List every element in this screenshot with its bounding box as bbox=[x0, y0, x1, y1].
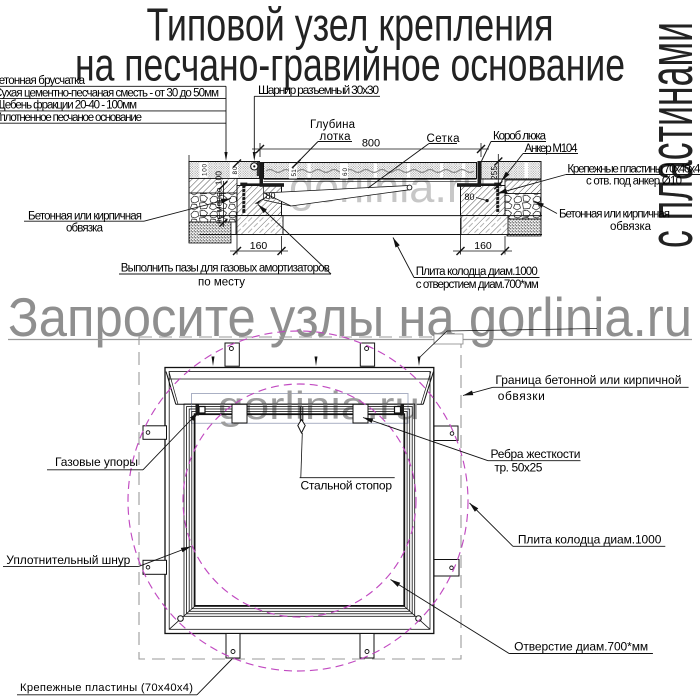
svg-text:Запросите узлы на gorlinia.ru: Запросите узлы на gorlinia.ru bbox=[8, 286, 692, 348]
svg-text:Отверстие диам.700*мм: Отверстие диам.700*мм bbox=[514, 640, 648, 654]
svg-text:Бетонная или кирпичная: Бетонная или кирпичная bbox=[28, 211, 142, 223]
svg-text:160: 160 bbox=[250, 240, 268, 252]
svg-text:Шарнир разъемный 30х30: Шарнир разъемный 30х30 bbox=[258, 83, 379, 97]
svg-text:80: 80 bbox=[266, 191, 276, 202]
svg-text:Короб люка: Короб люка bbox=[493, 131, 547, 143]
svg-text:Плита колодца диам.1000: Плита колодца диам.1000 bbox=[416, 266, 538, 278]
svg-text:Крепежные пластины 70х40х4: Крепежные пластины 70х40х4 bbox=[567, 164, 700, 176]
svg-text:Глубина: Глубина bbox=[310, 119, 356, 131]
svg-text:Бетонная брусчатка: Бетонная брусчатка bbox=[0, 75, 86, 87]
svg-text:800: 800 bbox=[362, 138, 380, 150]
svg-text:по месту: по месту bbox=[198, 277, 245, 289]
svg-text:80: 80 bbox=[465, 192, 475, 203]
svg-text:Выполнить пазы для газовых амо: Выполнить пазы для газовых амортизаторов bbox=[121, 263, 330, 275]
svg-text:Граница бетонной или кирпичной: Граница бетонной или кирпичной bbox=[495, 373, 681, 387]
svg-text:обвязка: обвязка bbox=[610, 221, 652, 233]
svg-text:обвязки: обвязки bbox=[498, 389, 545, 403]
svg-text:Ребра жесткости: Ребра жесткости bbox=[491, 447, 581, 461]
svg-text:с отверстием диам.700*мм: с отверстием диам.700*мм bbox=[416, 279, 539, 291]
svg-text:Сухая цементно-песчаная сместь: Сухая цементно-песчаная сместь - от 30 д… bbox=[0, 87, 219, 99]
svg-text:51*: 51* bbox=[291, 166, 298, 177]
svg-text:Плита колодца диам.1000: Плита колодца диам.1000 bbox=[518, 533, 662, 547]
svg-text:60: 60 bbox=[342, 168, 349, 176]
svg-text:Щебень фракции 20-40 - 100мм: Щебень фракции 20-40 - 100мм bbox=[0, 100, 137, 112]
svg-text:255: 255 bbox=[490, 165, 499, 180]
svg-text:Бетонная или кирпичная: Бетонная или кирпичная bbox=[559, 209, 670, 221]
svg-text:Газовые упоры: Газовые упоры bbox=[55, 455, 138, 469]
svg-text:не менее 100: не менее 100 bbox=[214, 171, 224, 224]
svg-text:Уплотненное песчаное основание: Уплотненное песчаное основание bbox=[0, 112, 142, 124]
svg-text:с отв. под анкер Ø10: с отв. под анкер Ø10 bbox=[586, 176, 682, 188]
svg-text:160: 160 bbox=[474, 240, 492, 252]
svg-text:обвязка: обвязка bbox=[66, 223, 104, 235]
svg-text:Крепежные пластины (70х40х4): Крепежные пластины (70х40х4) bbox=[20, 682, 193, 694]
svg-text:Стальной стопор: Стальной стопор bbox=[301, 479, 393, 493]
svg-text:Уплотнительный шнур: Уплотнительный шнур bbox=[6, 553, 130, 567]
svg-text:тр. 50х25: тр. 50х25 bbox=[494, 461, 542, 475]
svg-text:100: 100 bbox=[202, 164, 209, 176]
